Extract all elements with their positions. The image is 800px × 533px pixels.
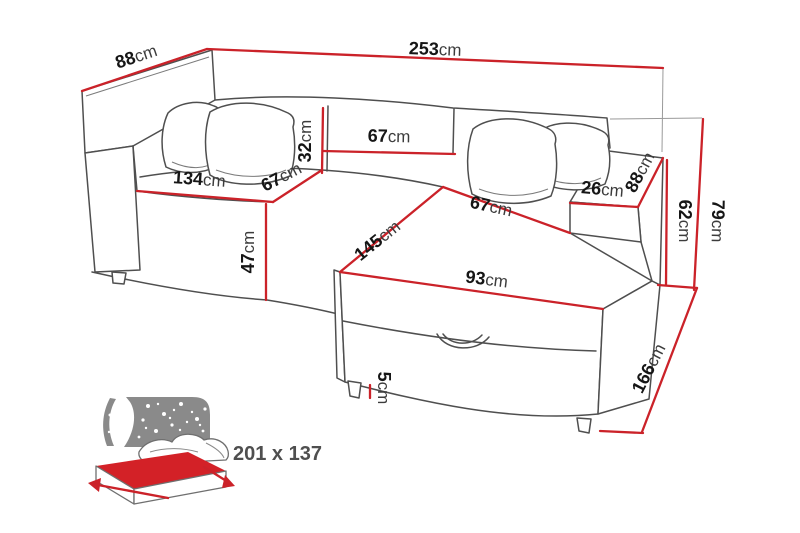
extension-line-right-top [662, 68, 663, 152]
night-sky-sliver [103, 398, 116, 446]
dim-unit: cm [239, 231, 258, 254]
dim-value: 47 [238, 253, 258, 273]
sofa-backrest-seam-right [453, 109, 454, 153]
dim-label-backrest-height: 32cm [295, 120, 315, 163]
dim-value: 93 [464, 267, 486, 289]
dim-unit: cm [708, 220, 727, 243]
dim-line-armrest-height [666, 160, 667, 285]
dim-label-armrest-height: 62cm [675, 200, 695, 243]
dim-value: 79 [708, 200, 728, 220]
dim-unit: cm [202, 170, 226, 191]
dim-value: 253 [409, 38, 440, 59]
dim-unit: cm [296, 120, 315, 143]
dim-label-seat-front-width: 134cm [172, 167, 226, 191]
dim-line-backrest-height [322, 108, 323, 173]
extension-line-height-top [610, 118, 702, 119]
diagram-canvas: 253cm 88cm 32cm 67cm 134cm 67cm 47cm 145… [0, 0, 800, 533]
dim-value: 26 [580, 177, 602, 199]
sleeping-area-icon: 201 x 137 [88, 397, 322, 504]
sofa-backrest-seam-left [327, 106, 328, 171]
sofa-dimensions-diagram: 253cm 88cm 32cm 67cm 134cm 67cm 47cm 145… [0, 0, 800, 533]
left-armrest [85, 146, 140, 272]
dim-value: 67 [368, 126, 388, 146]
dim-tick-bottom-right [658, 285, 697, 288]
bed-length-arrowhead [88, 478, 101, 492]
sleeping-area-size-label: 201 x 137 [233, 443, 322, 465]
dim-unit: cm [374, 382, 393, 405]
dim-unit: cm [484, 270, 509, 292]
extension-lines [610, 68, 702, 152]
sofa-base-bottom-edge [92, 272, 342, 315]
left-front-leg [112, 272, 126, 284]
dim-label-backrest-section-width: 67cm [368, 126, 411, 147]
dim-label-total-width: 253cm [409, 38, 462, 60]
dim-value: 5 [374, 372, 394, 382]
dim-value: 32 [295, 142, 315, 162]
dim-unit: cm [132, 41, 160, 66]
dim-label-total-height: 79cm [708, 200, 729, 243]
dim-unit: cm [600, 180, 624, 201]
dim-unit: cm [439, 40, 462, 60]
dim-unit: cm [388, 127, 411, 146]
dim-line-backrest-section-width [323, 151, 455, 154]
chaise-left-leg [348, 381, 361, 398]
dim-line-seat-front-width [137, 191, 273, 202]
dim-value: 134 [172, 167, 203, 189]
sofa-seat-back-fold-right [322, 170, 443, 187]
dim-label-seat-height: 47cm [238, 231, 258, 274]
chaise-right-leg [577, 418, 591, 433]
dim-value: 62 [675, 200, 695, 220]
dim-tick-depth-right-end [600, 431, 643, 433]
dim-label-leg-height: 5cm [374, 372, 394, 405]
right-armrest-front [570, 202, 641, 242]
dim-label-armrest-width: 26cm [580, 177, 624, 201]
dim-unit: cm [675, 220, 694, 243]
